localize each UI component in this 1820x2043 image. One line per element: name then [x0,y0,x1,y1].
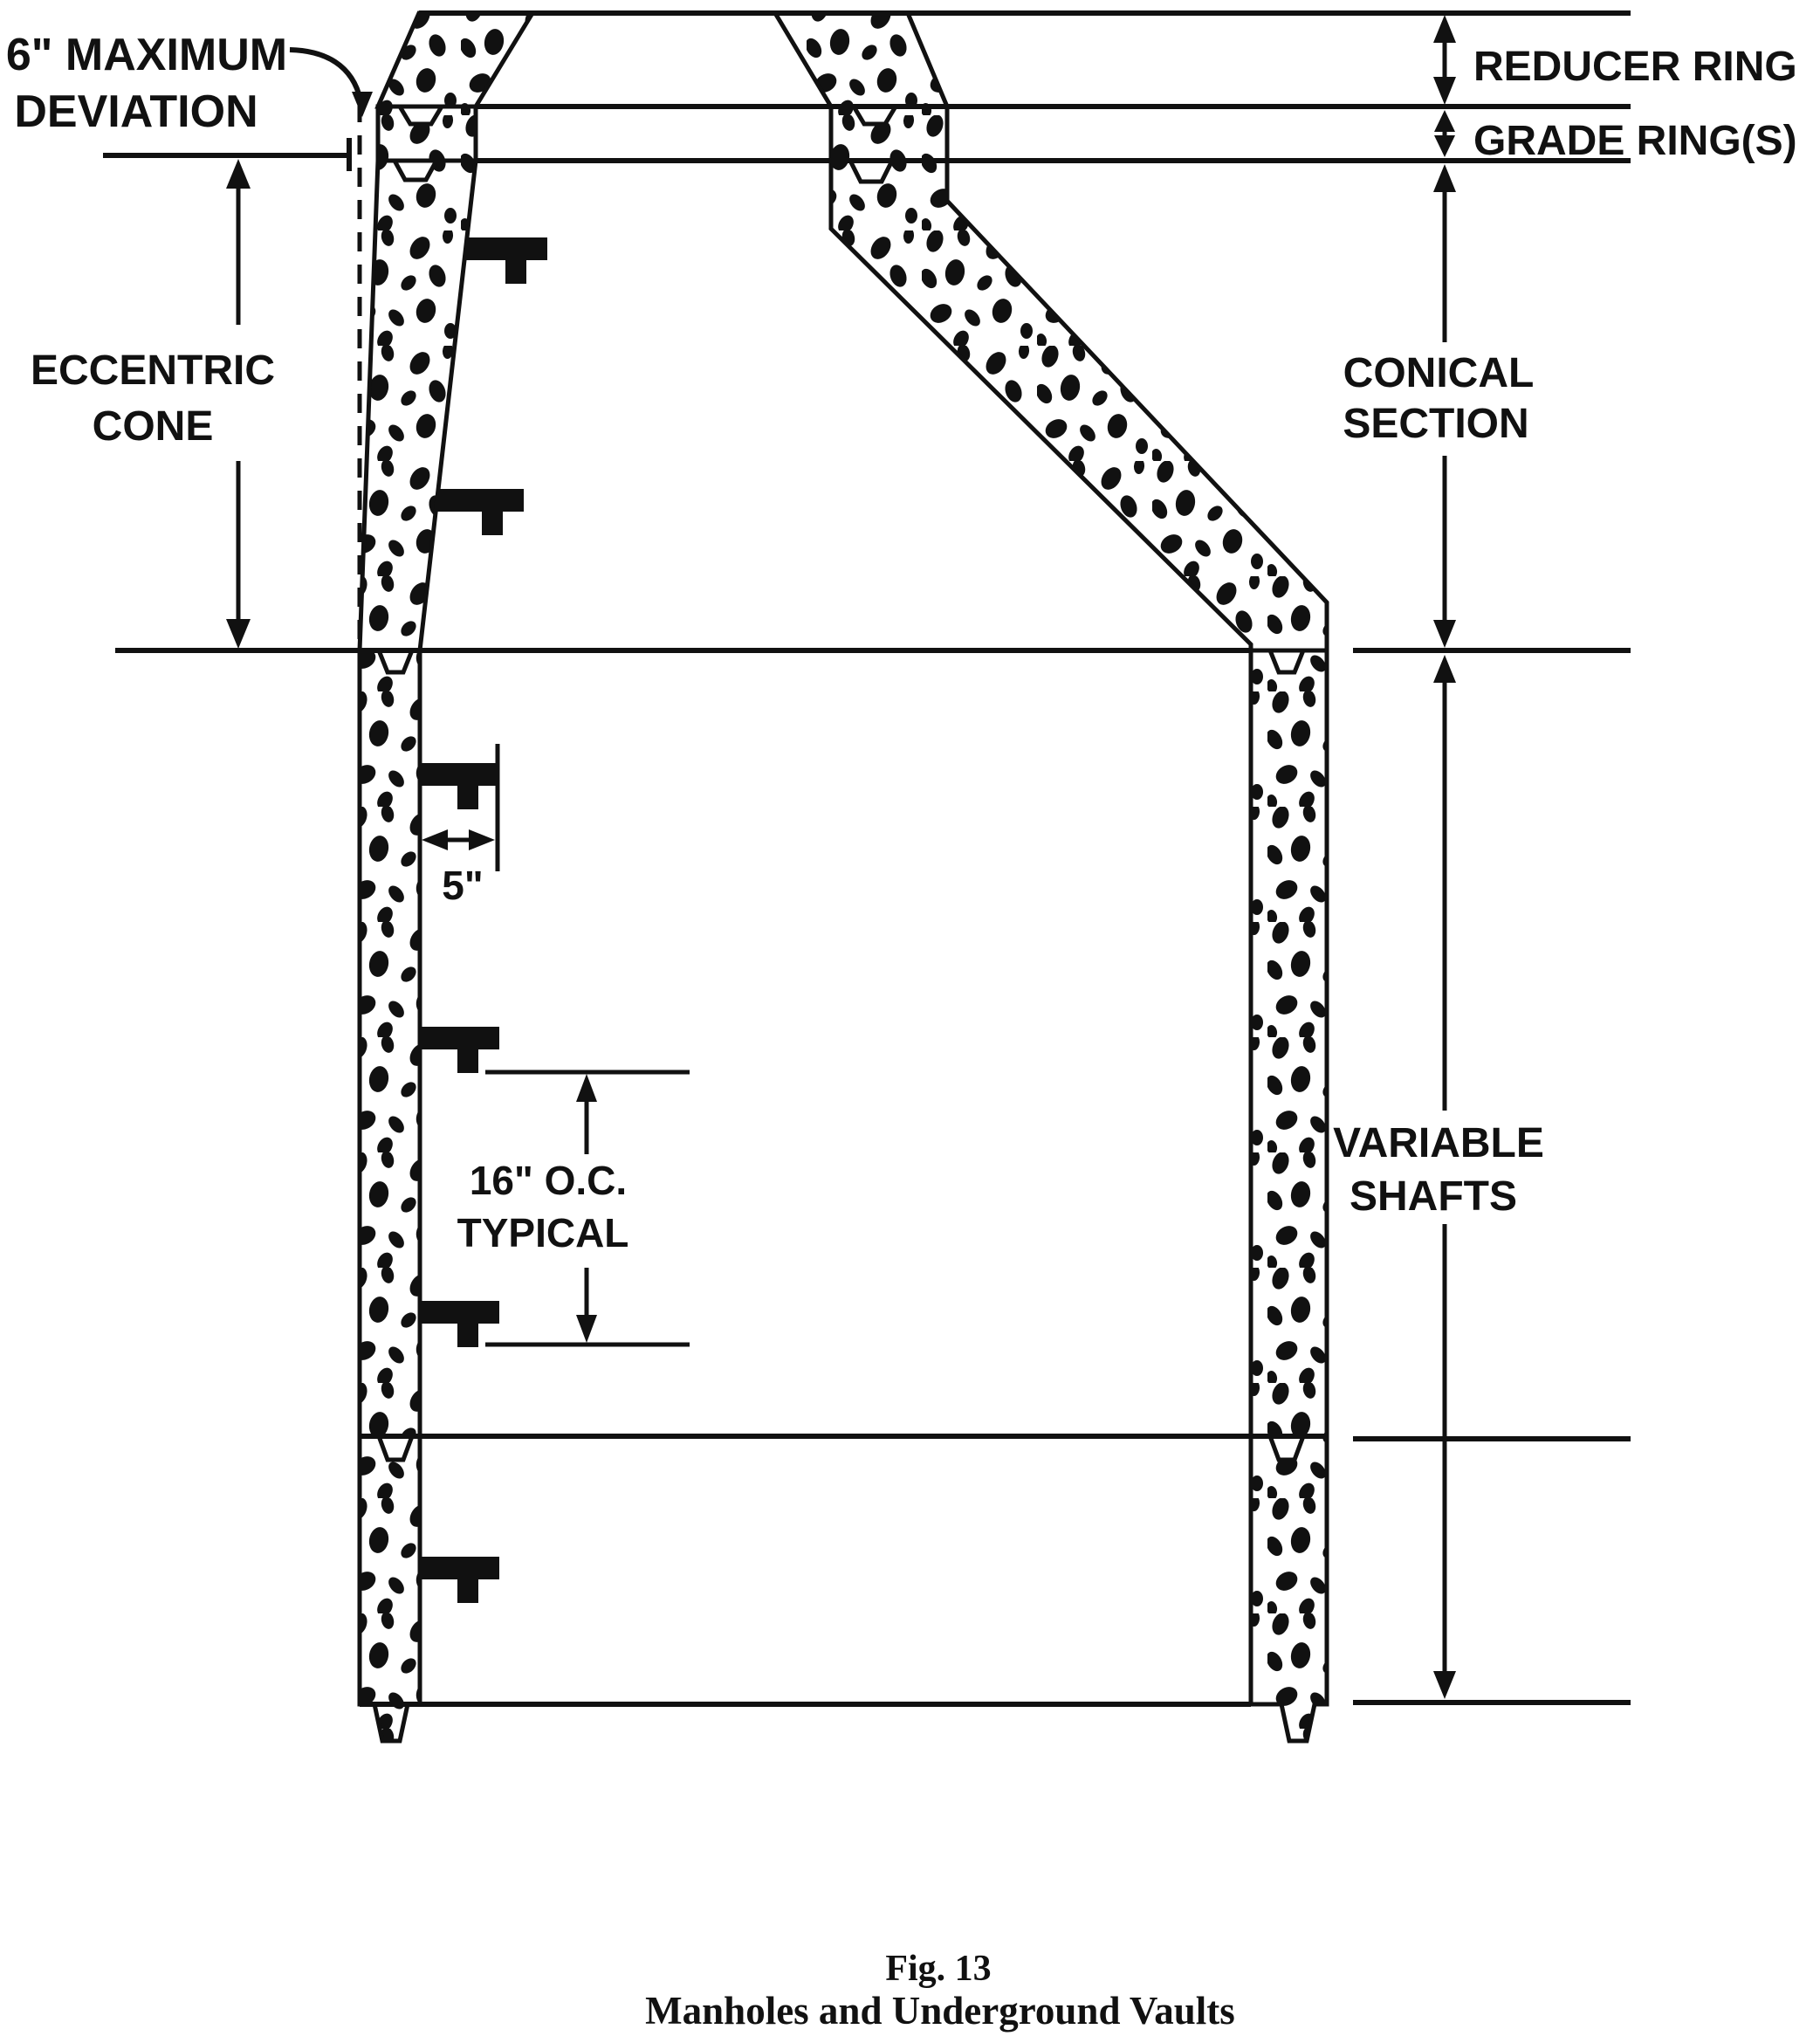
arrow-down-icon [1433,1671,1456,1699]
dim-rung-spacing [485,1072,690,1345]
label-grade-rings: GRADE RING(S) [1473,118,1797,164]
manhole-section-diagram: 6" MAXIMUM DEVIATION ECCENTRIC CONE REDU… [0,0,1820,2043]
arrow-up-icon [1433,15,1456,43]
grade-ring-left-section [378,107,476,161]
label-conical-1: CONICAL [1343,350,1535,396]
left-shaft-upper-wall [360,650,420,1436]
max-deviation-arrowhead-icon [352,92,373,117]
label-max-deviation-2: DEVIATION [14,86,258,137]
arrow-up-icon [1433,164,1456,192]
arrow-down-icon [1433,77,1456,105]
label-rung-offset: 5" [442,863,483,908]
ladder-rung [420,1301,499,1347]
reducer-ring-right-section [775,13,947,107]
arrow-up-icon [1433,655,1456,683]
eccentric-cone-left-wall [360,161,476,650]
label-reducer-ring: REDUCER RING [1473,44,1797,90]
label-rung-spacing-2: TYPICAL [457,1210,629,1255]
left-shaft-lower-wall [360,1436,420,1741]
arrow-down-icon [226,619,251,649]
arrow-right-icon [469,829,495,850]
ladder-rung [420,763,499,809]
figure-page: 6" MAXIMUM DEVIATION ECCENTRIC CONE REDU… [0,0,1820,2043]
arrow-down-icon [576,1315,597,1343]
label-eccentric-1: ECCENTRIC [31,347,275,394]
arrow-up-icon [576,1074,597,1102]
grade-ring-right-section [831,107,947,161]
ladder-rung [420,1027,499,1073]
arrow-left-icon [422,829,448,850]
ladder-rung [436,489,524,535]
label-eccentric-2: CONE [93,403,214,450]
label-rung-spacing-1: 16" O.C. [470,1158,627,1203]
wall-sections [360,13,1327,1741]
label-variable-2: SHAFTS [1350,1173,1517,1220]
arrow-down-icon [1434,135,1455,157]
right-shaft-upper-wall [1251,650,1327,1436]
max-deviation-leader [290,50,361,100]
arrow-up-icon [1434,110,1455,132]
right-shaft-lower-wall [1251,1436,1327,1741]
label-conical-2: SECTION [1343,401,1528,447]
arrow-down-icon [1433,620,1456,648]
arrow-up-icon [226,159,251,189]
conical-section-wall [831,161,1327,650]
ladder-rung [465,237,547,284]
ladder-rung [420,1557,499,1603]
figure-number: Fig. 13 [885,1949,991,1989]
reducer-ring-left-section [378,13,532,107]
figure-title: Manholes and Underground Vaults [645,1989,1235,2033]
label-variable-1: VARIABLE [1333,1120,1544,1166]
label-max-deviation-1: 6" MAXIMUM [6,30,287,80]
